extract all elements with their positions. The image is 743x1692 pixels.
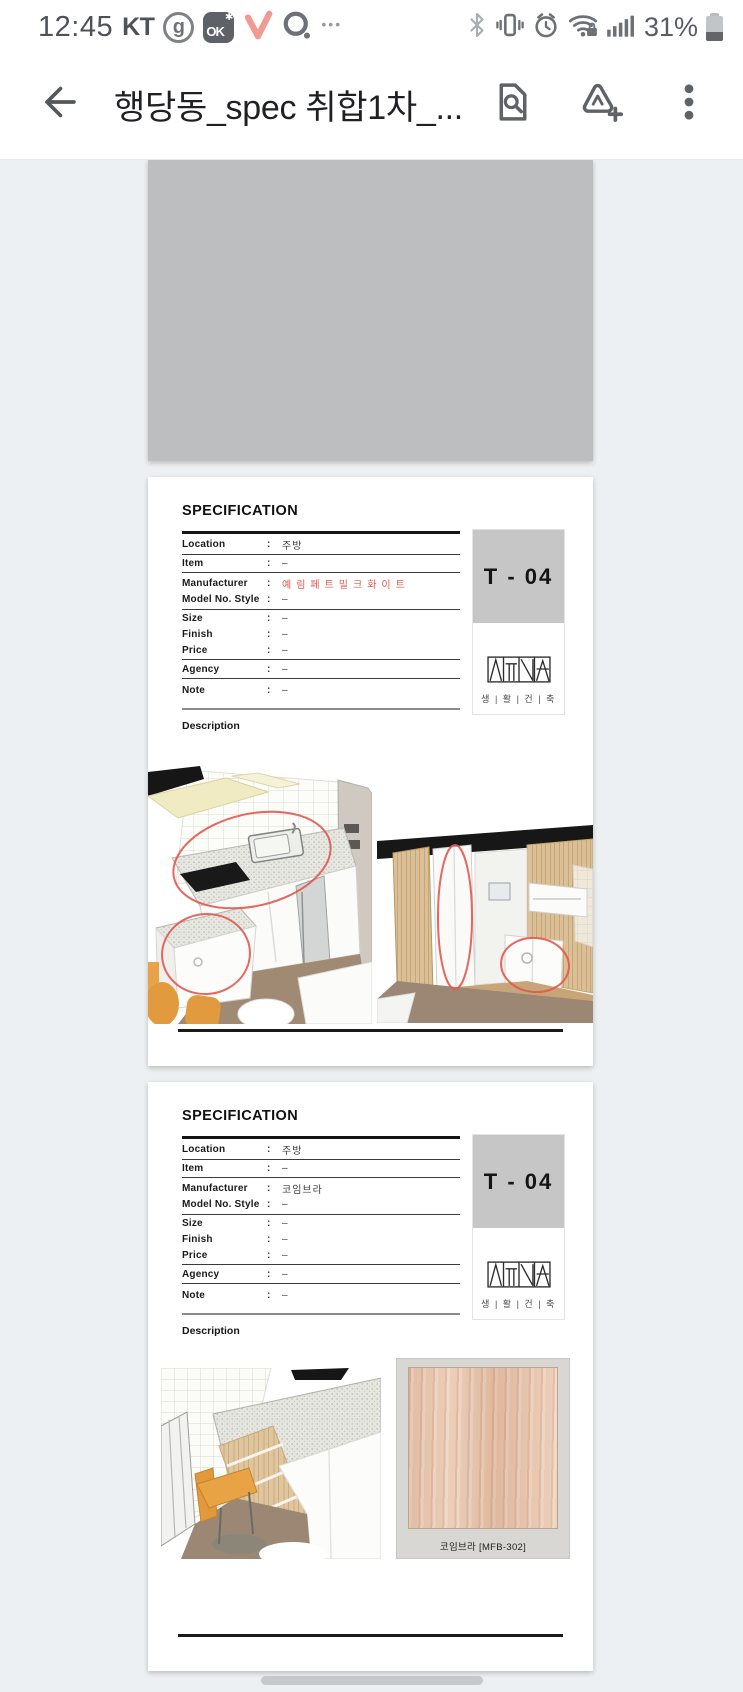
table-row: Model No. Style:–: [182, 591, 460, 607]
sample-label: 코임브라 [MFB-302]: [397, 1539, 569, 1553]
kitchen-render-annotated-figure: [148, 766, 372, 1024]
ok-app-icon: OK ✱: [203, 12, 234, 43]
pdf-viewer-scroll-area[interactable]: SPECIFICATION Location:주방 Item:– Manufac…: [0, 160, 743, 1692]
type-code: T - 04: [473, 1135, 564, 1228]
table-row: Agency:–: [182, 661, 460, 677]
table-row: Manufacturer:코임브라: [182, 1180, 460, 1196]
company-logo: 생 | 활 | 건 | 축: [473, 656, 564, 705]
back-arrow-icon: [36, 80, 80, 129]
saenghwal-geonchuk-logo-icon: [487, 656, 551, 688]
table-row: Finish:–: [182, 1232, 460, 1248]
o-app-icon: [282, 10, 312, 45]
pdf-page-spec-sheet-1[interactable]: SPECIFICATION Location:주방 Item:– Manufac…: [148, 477, 593, 1066]
more-notifications-icon: •••: [321, 16, 342, 38]
table-row: Item:–: [182, 556, 460, 572]
table-row: Finish:–: [182, 627, 460, 643]
wood-film-sample-figure: 코임브라 [MFB-302]: [396, 1358, 570, 1559]
table-row: Size:–: [182, 1216, 460, 1232]
bluetooth-icon: [466, 11, 488, 44]
alarm-icon: [532, 11, 560, 44]
home-gesture-pill[interactable]: [261, 1676, 483, 1685]
back-button[interactable]: [30, 77, 86, 133]
table-row: Note:–: [182, 1287, 460, 1303]
type-code: T - 04: [473, 530, 564, 623]
page-footer-rule: [178, 1029, 563, 1032]
type-code-box: T - 04 생 | 활 | 건 |: [472, 529, 565, 715]
spec-heading: SPECIFICATION: [182, 1108, 298, 1124]
type-code-box: T - 04 생 | 활 | 건 |: [472, 1134, 565, 1320]
document-title: 행당동_spec 취합1차_...: [114, 80, 485, 129]
pdf-page-spec-sheet-2[interactable]: SPECIFICATION Location:주방 Item:– Manufac…: [148, 1082, 593, 1671]
table-row: Model No. Style:–: [182, 1196, 460, 1212]
table-row: Price:–: [182, 1248, 460, 1264]
wifi-secured-icon: [568, 11, 598, 44]
annotate-add-button[interactable]: [573, 77, 629, 133]
logo-caption: 생 | 활 | 건 | 축: [481, 692, 556, 705]
table-row: Manufacturer:예림페트밀크화이트: [182, 575, 460, 591]
description-label: Description: [182, 1325, 240, 1337]
overflow-menu-icon: [669, 80, 709, 129]
spec-sheet: SPECIFICATION Location:주방 Item:– Manufac…: [148, 477, 593, 1066]
find-in-document-button[interactable]: [485, 77, 541, 133]
table-row: Agency:–: [182, 1266, 460, 1282]
status-bar-left: 12:45 KT g OK ✱ •••: [38, 10, 342, 45]
spec-heading: SPECIFICATION: [182, 503, 298, 519]
company-logo: 생 | 활 | 건 | 축: [473, 1261, 564, 1310]
table-row: Size:–: [182, 611, 460, 627]
app-bar: 행당동_spec 취합1차_...: [0, 50, 743, 160]
g-app-icon: g: [163, 12, 194, 43]
spec-table: Location:주방 Item:– Manufacturer:예림페트밀크화이…: [182, 531, 460, 710]
table-row: Price:–: [182, 643, 460, 659]
pdf-page-placeholder-image[interactable]: [148, 160, 593, 461]
clock: 12:45: [38, 11, 113, 44]
status-bar: 12:45 KT g OK ✱ •••: [0, 0, 743, 50]
battery-icon: [706, 13, 723, 41]
overflow-menu-button[interactable]: [661, 77, 717, 133]
annotate-add-icon: [578, 79, 624, 130]
status-bar-right: 31%: [466, 11, 723, 44]
wood-sample-swatch: [408, 1367, 558, 1529]
app-bar-actions: [485, 77, 721, 133]
page-footer-rule: [178, 1634, 563, 1637]
phone-screen: 12:45 KT g OK ✱ •••: [0, 0, 743, 1692]
pink-check-app-icon: [243, 10, 273, 45]
battery-percent: 31%: [644, 12, 698, 43]
carrier-label: KT: [122, 13, 154, 42]
table-row: Location:주방: [182, 1141, 460, 1157]
kitchen-corner-render-figure: [161, 1368, 381, 1559]
table-row: Note:–: [182, 682, 460, 698]
signal-strength-icon: [606, 11, 634, 44]
vibrate-icon: [496, 11, 524, 44]
find-in-document-icon: [491, 80, 535, 129]
spec-table: Location:주방 Item:– Manufacturer:코임브라 Mod…: [182, 1136, 460, 1315]
table-row: Item:–: [182, 1161, 460, 1177]
logo-caption: 생 | 활 | 건 | 축: [481, 1297, 556, 1310]
saenghwal-geonchuk-logo-icon: [487, 1261, 551, 1293]
table-row: Location:주방: [182, 536, 460, 552]
description-label: Description: [182, 720, 240, 732]
pantry-render-annotated-figure: [377, 825, 593, 1023]
spec-sheet: SPECIFICATION Location:주방 Item:– Manufac…: [148, 1082, 593, 1671]
